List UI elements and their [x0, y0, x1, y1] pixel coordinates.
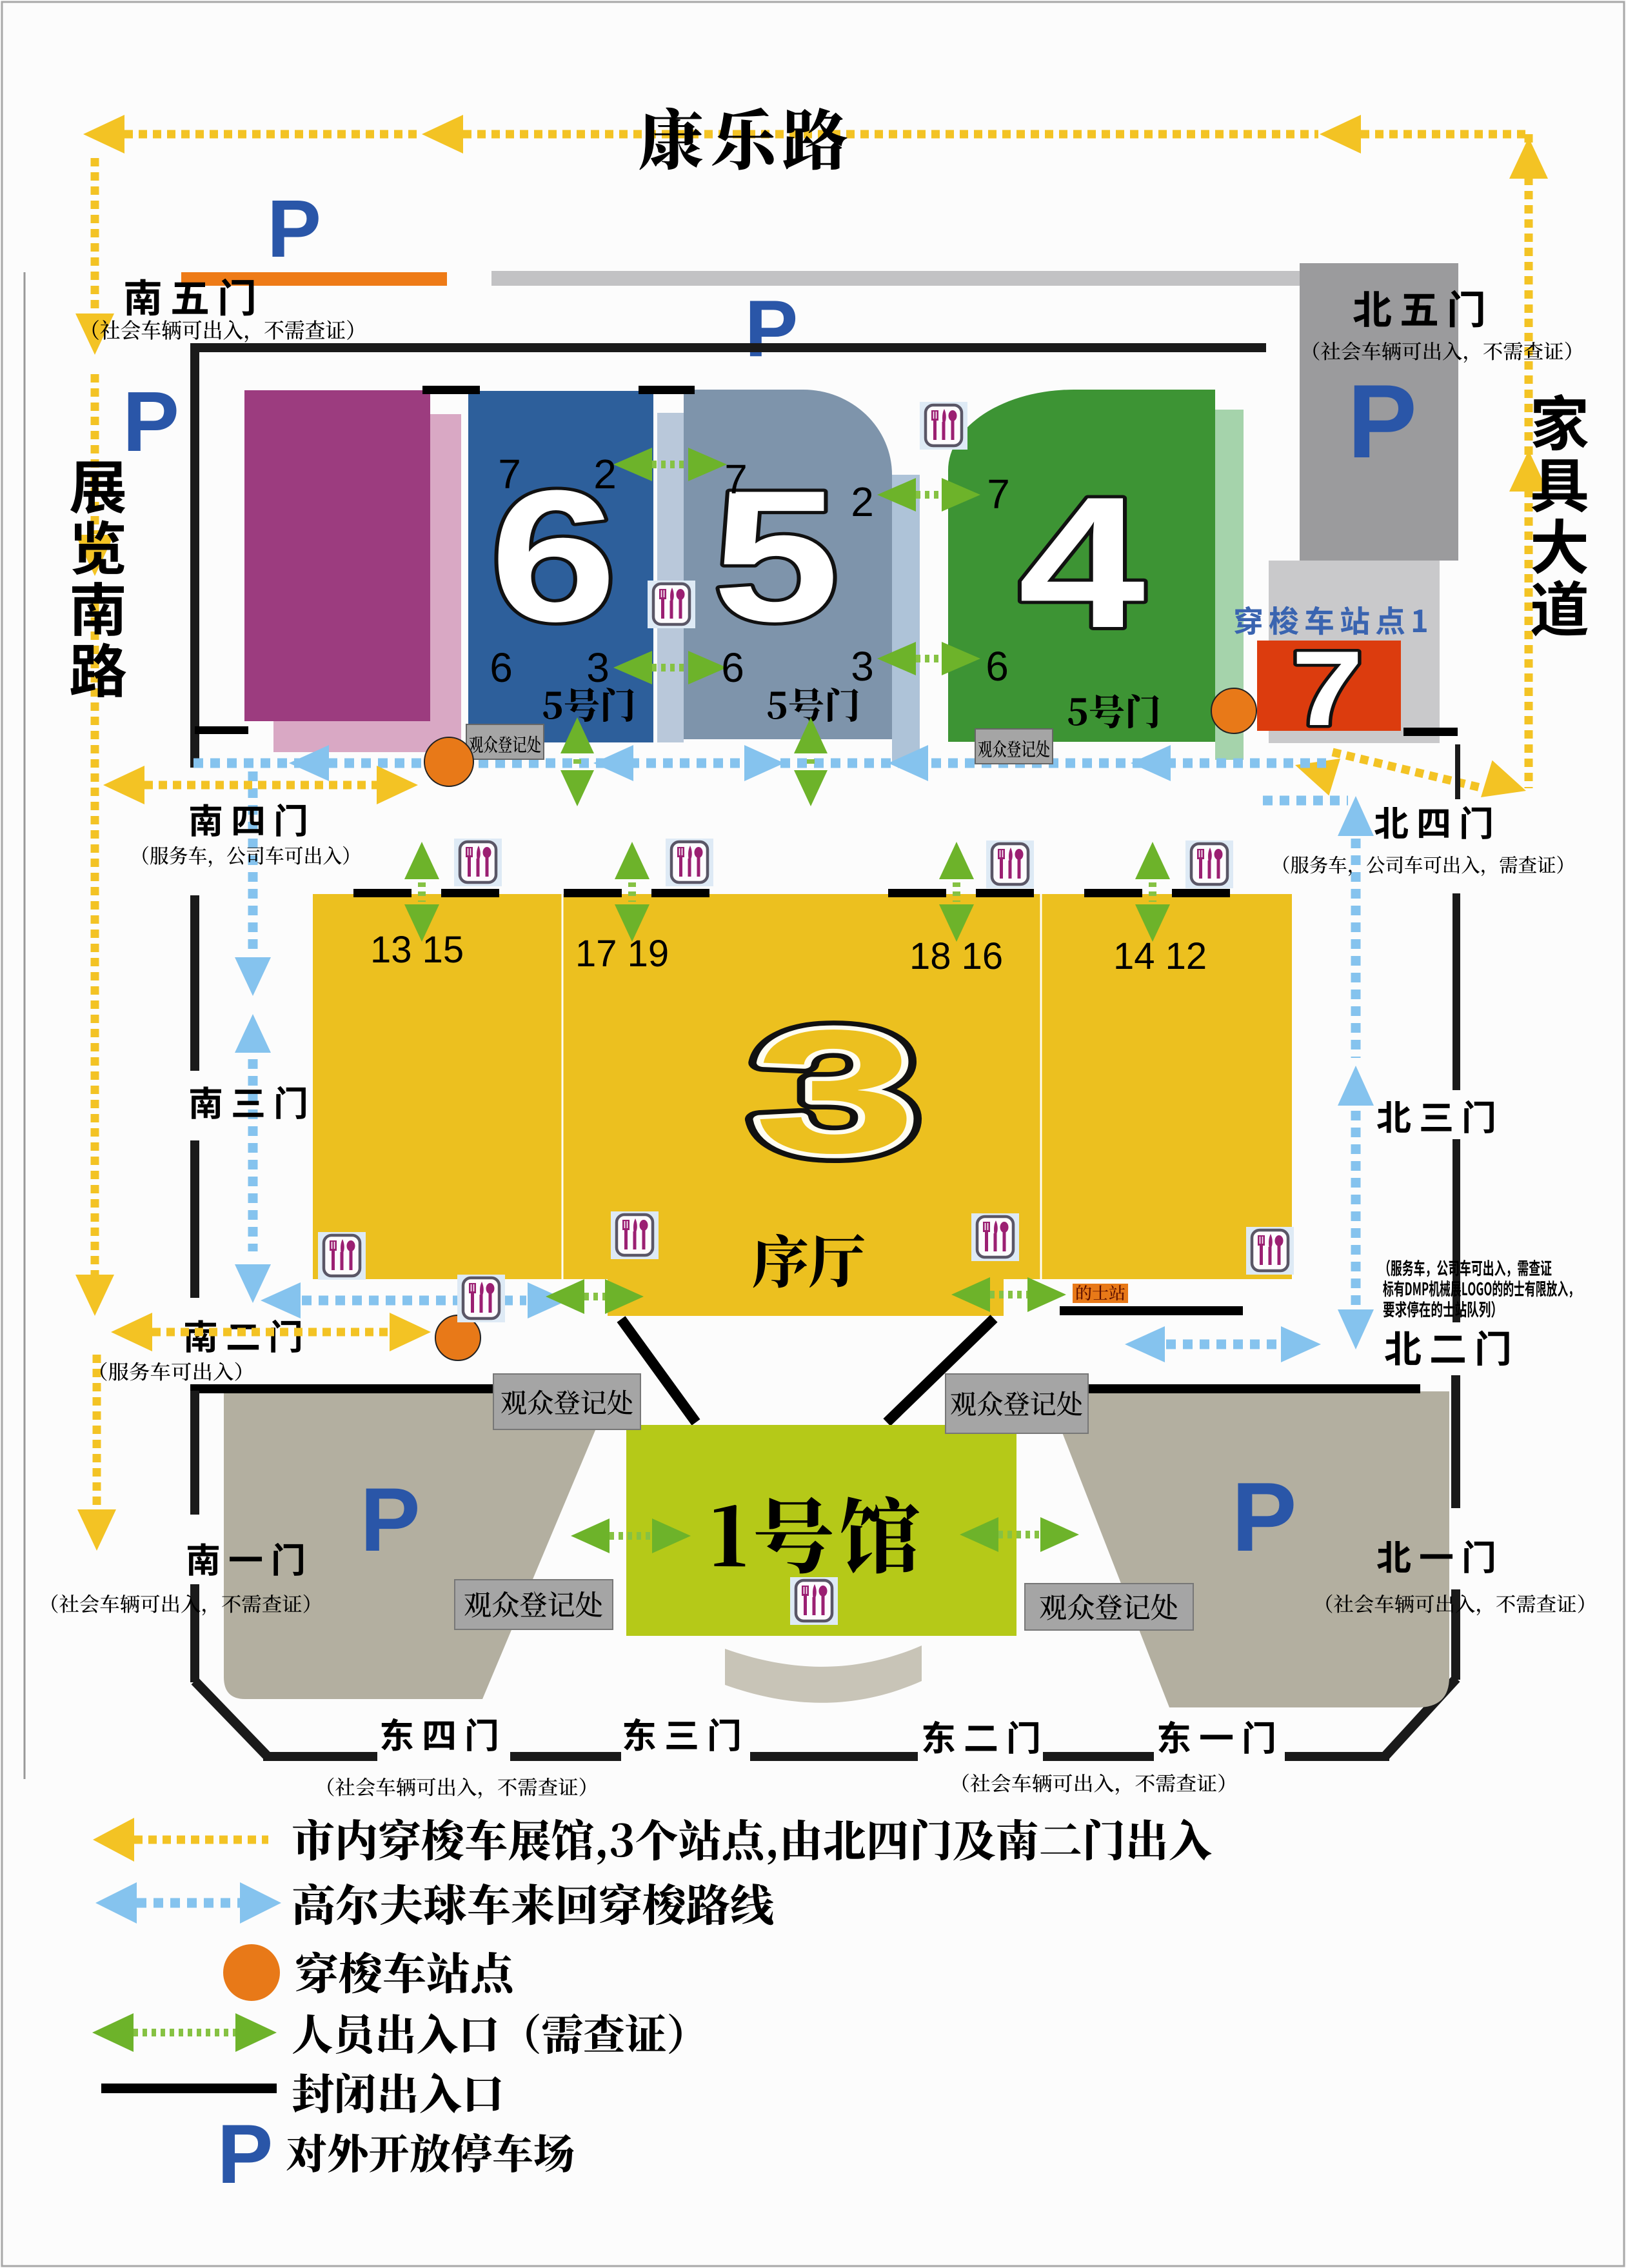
svg-text:7: 7 — [1291, 629, 1363, 748]
svg-text:17 19: 17 19 — [575, 933, 669, 975]
svg-text:（社会车辆可出入，不需查证）: （社会车辆可出入，不需查证） — [39, 1588, 322, 1617]
svg-text:市内穿梭车展馆,3个站点,由北四门及南二门出入: 市内穿梭车展馆,3个站点,由北四门及南二门出入 — [292, 1807, 1212, 1869]
svg-text:北五门: 北五门 — [1353, 278, 1494, 335]
svg-text:P: P — [1231, 1462, 1296, 1572]
svg-text:路: 路 — [69, 625, 127, 709]
svg-text:南一门: 南一门 — [186, 1532, 313, 1583]
svg-text:5号门: 5号门 — [1067, 684, 1161, 736]
svg-text:（服务车，公司车可出入）: （服务车，公司车可出入） — [130, 840, 361, 869]
svg-text:北四门: 北四门 — [1374, 795, 1502, 846]
svg-text:2: 2 — [593, 451, 617, 497]
svg-text:观众登记处: 观众登记处 — [464, 1582, 603, 1624]
svg-text:6: 6 — [721, 644, 744, 691]
svg-text:18 16: 18 16 — [909, 935, 1003, 977]
svg-text:封闭出入口: 封闭出入口 — [292, 2060, 504, 2122]
svg-text:7: 7 — [724, 456, 748, 502]
svg-text:对外开放停车场: 对外开放停车场 — [286, 2122, 575, 2181]
svg-text:P: P — [745, 284, 798, 373]
svg-text:P: P — [217, 2107, 273, 2201]
svg-text:要求停在的士站队列）: 要求停在的士站队列） — [1383, 1296, 1503, 1321]
svg-text:康乐路: 康乐路 — [638, 89, 855, 183]
svg-text:北三门: 北三门 — [1376, 1089, 1504, 1140]
svg-text:（社会车辆可出入，不需查证）: （社会车辆可出入，不需查证） — [1300, 335, 1584, 364]
svg-text:观众登记处: 观众登记处 — [469, 731, 541, 757]
svg-text:（服务车可出入）: （服务车可出入） — [87, 1356, 255, 1385]
svg-text:东三门: 东三门 — [622, 1707, 749, 1758]
svg-text:6: 6 — [986, 643, 1009, 690]
svg-text:P: P — [360, 1469, 420, 1570]
svg-text:序厅: 序厅 — [752, 1218, 866, 1299]
svg-text:3: 3 — [753, 993, 917, 1189]
svg-text:观众登记处: 观众登记处 — [978, 735, 1050, 762]
svg-text:5号门: 5号门 — [542, 678, 636, 730]
svg-text:东一门: 东一门 — [1156, 1710, 1284, 1761]
svg-text:北二门: 北二门 — [1384, 1319, 1520, 1373]
svg-text:（社会车辆可出入，不需查证）: （社会车辆可出入，不需查证） — [1313, 1588, 1597, 1617]
svg-text:P: P — [1347, 363, 1417, 480]
svg-text:4: 4 — [1018, 457, 1147, 667]
svg-text:的士站: 的士站 — [1075, 1280, 1125, 1304]
svg-text:（社会车辆可出入，不需查证）: （社会车辆可出入，不需查证） — [79, 314, 366, 344]
svg-text:穿梭车站点: 穿梭车站点 — [295, 1940, 514, 2002]
svg-text:（服务车，公司车可出入，需查证）: （服务车，公司车可出入，需查证） — [1271, 850, 1575, 878]
svg-text:5号门: 5号门 — [766, 678, 860, 730]
svg-text:东四门: 东四门 — [379, 1707, 507, 1758]
svg-text:（社会车辆可出入，不需查证）: （社会车辆可出入，不需查证） — [315, 1771, 599, 1800]
svg-text:观众登记处: 观众登记处 — [501, 1382, 633, 1421]
svg-text:南四门: 南四门 — [188, 793, 316, 844]
svg-text:14 12: 14 12 — [1113, 935, 1207, 977]
svg-text:P: P — [123, 374, 179, 469]
svg-text:高尔夫球车来回穿梭路线: 高尔夫球车来回穿梭路线 — [292, 1871, 774, 1934]
svg-text:7: 7 — [987, 471, 1010, 517]
svg-text:观众登记处: 观众登记处 — [950, 1384, 1083, 1422]
svg-text:P: P — [267, 183, 321, 274]
svg-text:1号馆: 1号馆 — [710, 1473, 926, 1590]
svg-text:（社会车辆可出入，不需查证）: （社会车辆可出入，不需查证） — [949, 1767, 1238, 1796]
svg-text:道: 道 — [1530, 562, 1589, 648]
svg-text:北一门: 北一门 — [1376, 1529, 1504, 1580]
svg-text:7: 7 — [498, 451, 521, 497]
svg-text:南三门: 南三门 — [188, 1075, 316, 1126]
svg-text:观众登记处: 观众登记处 — [1039, 1585, 1178, 1626]
svg-text:人员出入口（需查证）: 人员出入口（需查证） — [292, 2001, 708, 2062]
svg-text:2: 2 — [851, 479, 874, 525]
svg-text:6: 6 — [490, 644, 513, 691]
svg-text:13 15: 13 15 — [370, 929, 464, 971]
svg-text:东二门: 东二门 — [921, 1710, 1049, 1761]
